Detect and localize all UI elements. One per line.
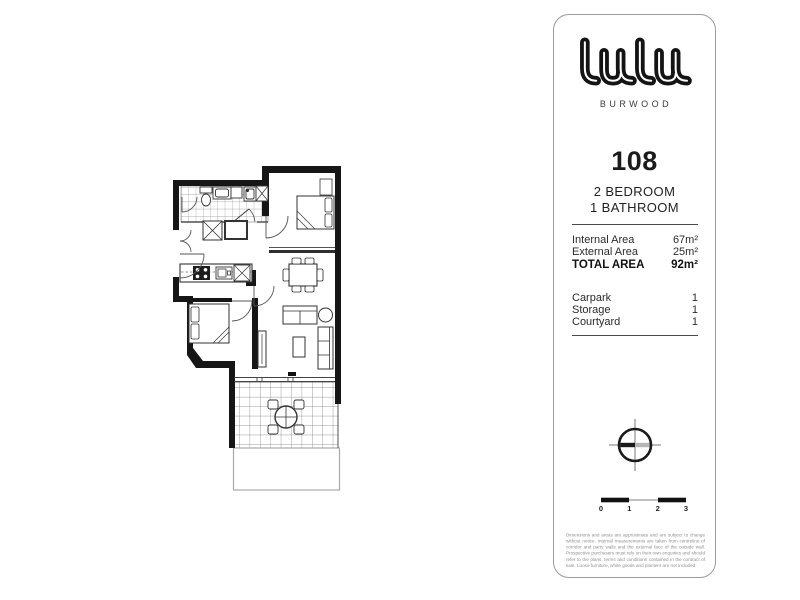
area-label: External Area xyxy=(572,246,638,258)
bedroom-2 xyxy=(297,179,334,229)
floorplan-sheet: lulu BURWOOD 108 2 BEDROOM 1 BATHROOM In… xyxy=(0,0,800,600)
sliding-door-handle xyxy=(288,372,296,376)
bath-bench xyxy=(231,187,242,198)
inclusion-row-courtyard: Courtyard 1 xyxy=(572,316,698,328)
area-row-total: TOTAL AREA 92m² xyxy=(572,259,698,271)
sofa-2 xyxy=(318,327,333,369)
area-row-internal: Internal Area 67m² xyxy=(572,234,698,246)
inclusion-label: Storage xyxy=(572,304,611,316)
unit-config: 2 BEDROOM 1 BATHROOM xyxy=(554,184,715,215)
unit-bathrooms: 1 BATHROOM xyxy=(554,200,715,216)
bedroom2-sliding-wall xyxy=(269,250,335,253)
dining-table xyxy=(289,264,317,286)
scale-bar xyxy=(601,497,686,503)
coffee-table xyxy=(293,337,305,357)
divider-top xyxy=(572,224,698,225)
compass-icon xyxy=(607,417,663,473)
bedroom-1 xyxy=(189,304,229,343)
bedroom1-door xyxy=(232,301,252,321)
toilet-bowl xyxy=(202,194,211,206)
armchair xyxy=(319,308,333,322)
area-label: TOTAL AREA xyxy=(572,259,644,271)
inclusion-label: Courtyard xyxy=(572,316,620,328)
area-label: Internal Area xyxy=(572,234,634,246)
closets xyxy=(203,221,247,240)
disclaimer-text: Dimensions and areas are approximate and… xyxy=(566,532,705,568)
inclusion-value: 1 xyxy=(692,316,698,328)
scale-label: 1 xyxy=(621,504,637,513)
floor-plan xyxy=(165,160,350,495)
disclaimer: Dimensions and areas are approximate and… xyxy=(566,532,705,572)
scale-bar-labels: 0 1 2 3 xyxy=(593,504,694,513)
bedroom2-door xyxy=(266,216,288,238)
scale-label: 0 xyxy=(593,504,609,513)
info-panel: lulu BURWOOD 108 2 BEDROOM 1 BATHROOM In… xyxy=(553,14,716,578)
logo-location: BURWOOD xyxy=(554,99,715,109)
inclusion-row-storage: Storage 1 xyxy=(572,304,698,316)
inclusion-value: 1 xyxy=(692,292,698,304)
cooktop xyxy=(193,266,210,280)
inclusion-row-carpark: Carpark 1 xyxy=(572,292,698,304)
brand-name: lulu xyxy=(554,15,555,16)
area-value: 25m² xyxy=(673,246,698,258)
bedside-table xyxy=(320,179,332,195)
unit-bedrooms: 2 BEDROOM xyxy=(554,184,715,200)
scale-label: 2 xyxy=(650,504,666,513)
divider-bottom xyxy=(572,335,698,336)
courtyard-extension xyxy=(234,448,340,490)
toilet-cistern xyxy=(200,187,212,193)
inclusion-value: 1 xyxy=(692,304,698,316)
kitchen xyxy=(180,264,252,282)
area-value: 67m² xyxy=(673,234,698,246)
area-row-external: External Area 25m² xyxy=(572,246,698,258)
living-dining xyxy=(258,258,333,369)
inclusion-label: Carpark xyxy=(572,292,611,304)
unit-number: 108 xyxy=(554,146,715,177)
area-value: 92m² xyxy=(671,259,698,271)
scale-label: 3 xyxy=(678,504,694,513)
lulu-logo xyxy=(577,37,694,86)
